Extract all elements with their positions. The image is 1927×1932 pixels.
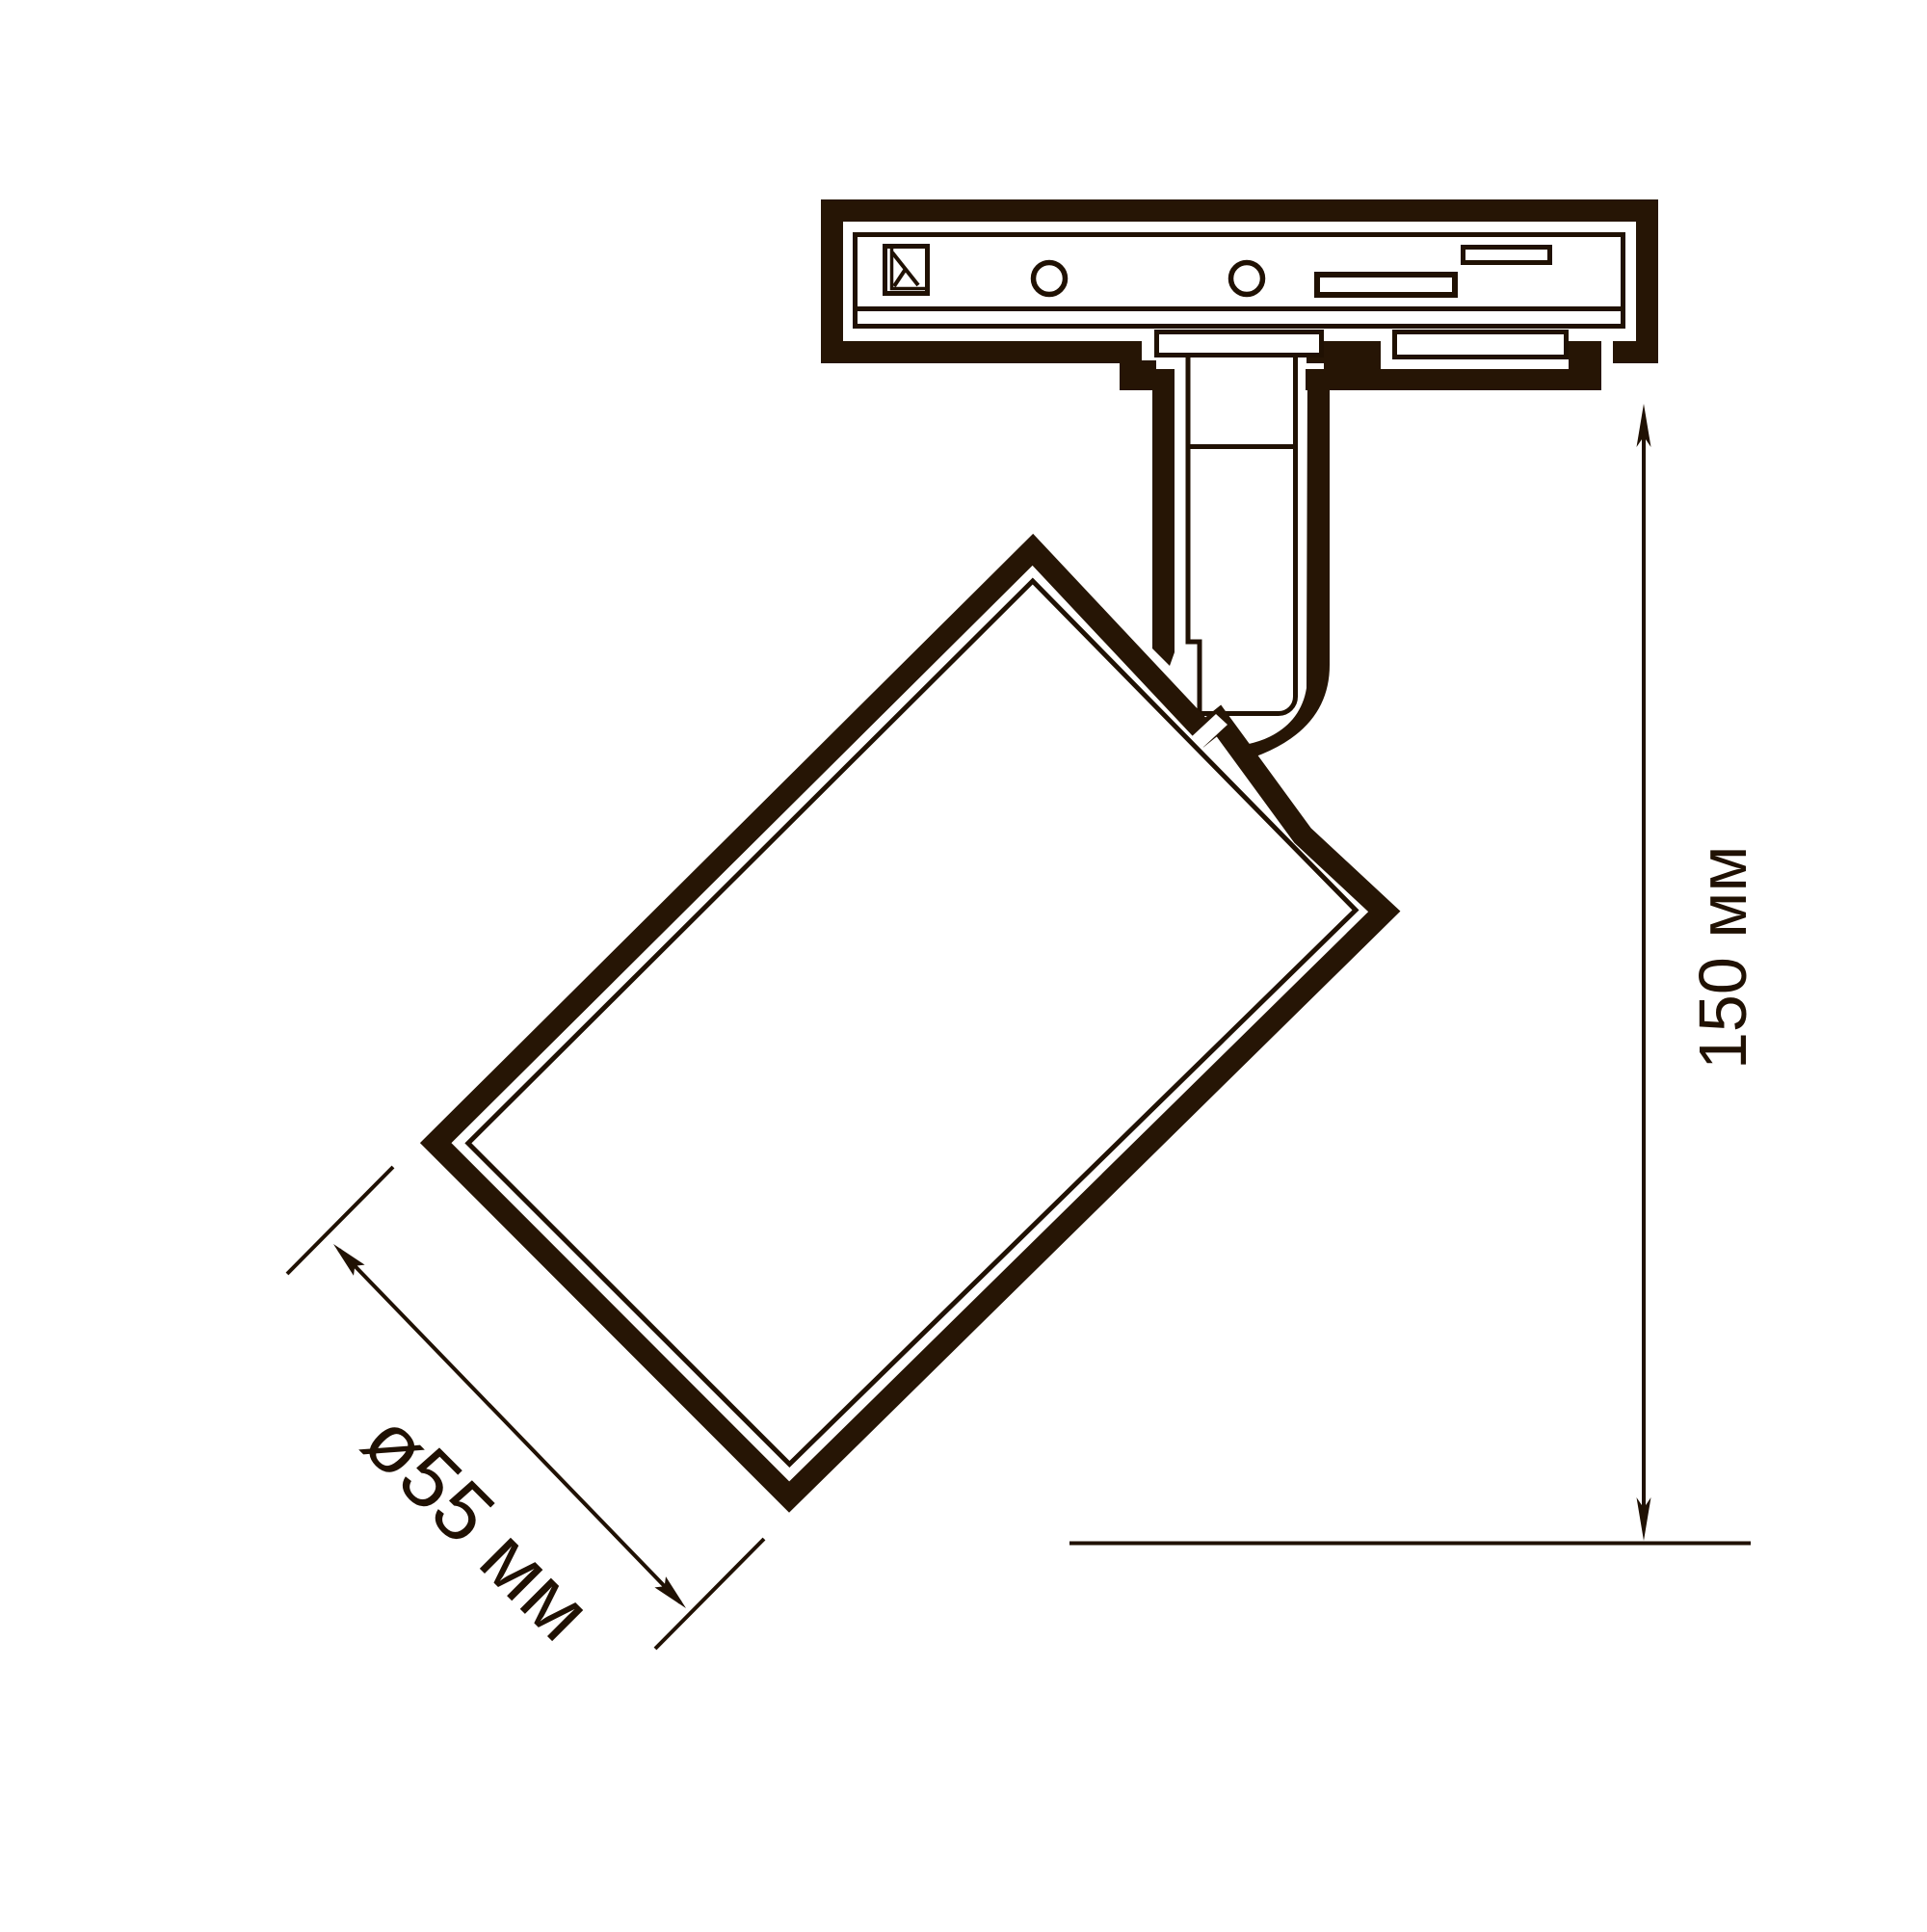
svg-text:150 мм: 150 мм <box>1685 846 1760 1071</box>
